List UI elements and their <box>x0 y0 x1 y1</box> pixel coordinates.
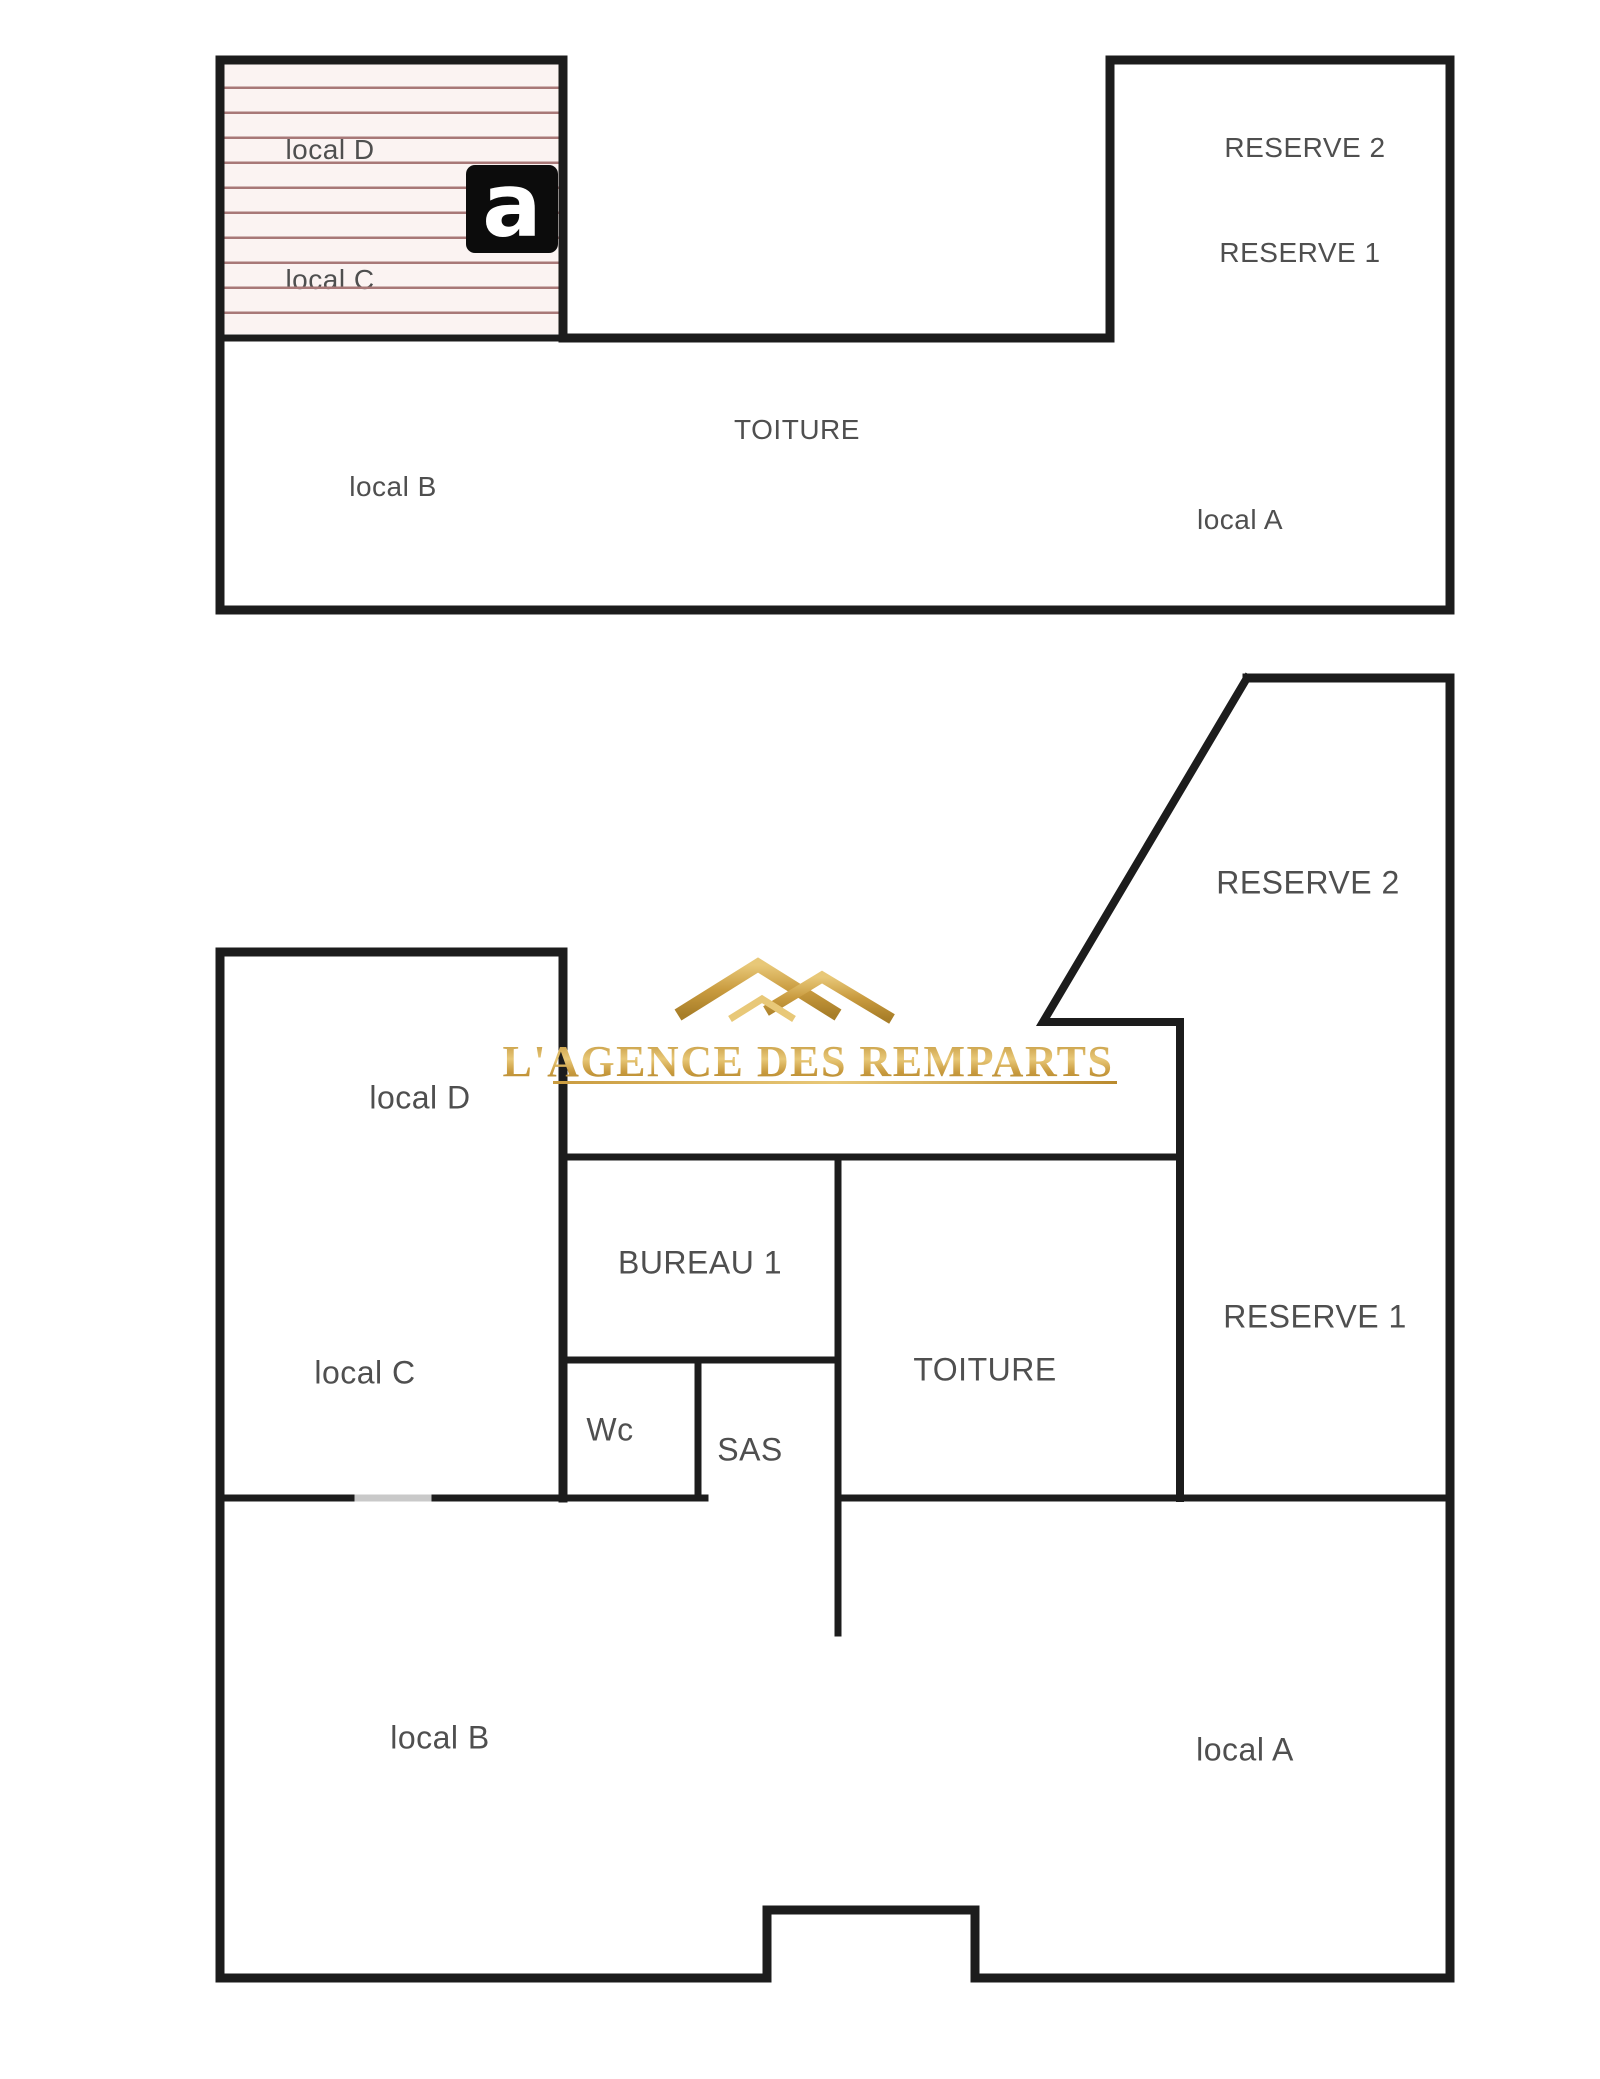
upper-room-label-local-b: local B <box>349 471 437 503</box>
lower-room-label-local-a: local A <box>1196 1732 1294 1769</box>
watermark-underline <box>553 1081 1117 1084</box>
lower-room-label-local-b: local B <box>390 1720 490 1757</box>
lower-room-label-sas: SAS <box>717 1432 783 1469</box>
lower-room-label-bureau-1: BUREAU 1 <box>618 1245 782 1282</box>
lower-room-label-local-c: local C <box>314 1355 415 1392</box>
lower-room-label-reserve-1: RESERVE 1 <box>1223 1299 1407 1336</box>
upper-room-label-reserve-1: RESERVE 1 <box>1219 237 1380 269</box>
watermark-agency-name: L'AGENCE DES REMPARTS <box>503 1036 1114 1087</box>
watermark-roof-icon <box>670 953 900 1031</box>
upper-room-label-local-d: local D <box>285 134 374 166</box>
agency-logo-a: a <box>466 165 558 253</box>
upper-room-label-local-c: local C <box>285 264 374 296</box>
upper-room-label-local-a: local A <box>1197 504 1283 536</box>
upper-room-label-toiture: TOITURE <box>734 414 860 446</box>
lower-room-label-wc: Wc <box>586 1412 633 1449</box>
lower-room-label-toiture: TOITURE <box>913 1352 1056 1389</box>
upper-room-label-reserve-2: RESERVE 2 <box>1224 132 1385 164</box>
lower-room-label-local-d: local D <box>369 1080 470 1117</box>
lower-room-label-reserve-2: RESERVE 2 <box>1216 865 1400 902</box>
agency-logo-letter: a <box>482 162 541 250</box>
floor-plan-page: local D local C RESERVE 2 RESERVE 1 TOIT… <box>0 0 1600 2079</box>
